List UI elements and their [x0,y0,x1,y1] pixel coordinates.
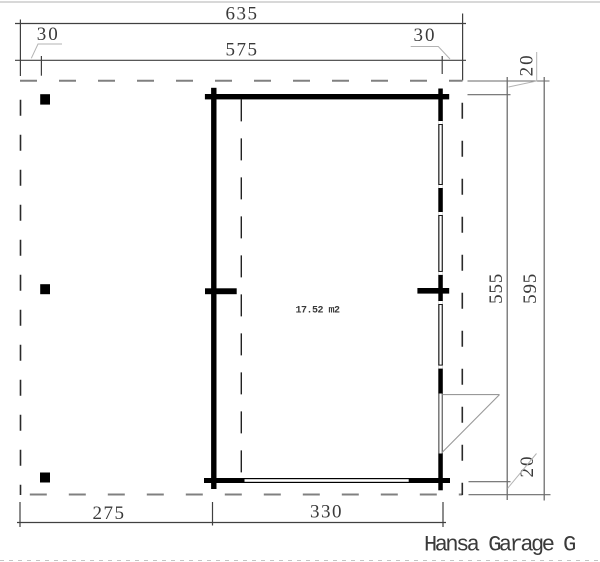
svg-text:575: 575 [226,39,259,60]
svg-text:30: 30 [414,25,437,46]
svg-text:Hansa Garage G: Hansa Garage G [424,533,575,558]
svg-text:595: 595 [520,273,541,304]
svg-text:635: 635 [226,4,259,25]
svg-text:30: 30 [37,24,60,45]
svg-text:555: 555 [486,273,507,304]
svg-text:20: 20 [517,53,538,76]
svg-text:17.52 m2: 17.52 m2 [295,306,340,317]
svg-text:330: 330 [310,502,343,523]
svg-text:275: 275 [93,503,126,524]
svg-text:20: 20 [517,455,538,478]
